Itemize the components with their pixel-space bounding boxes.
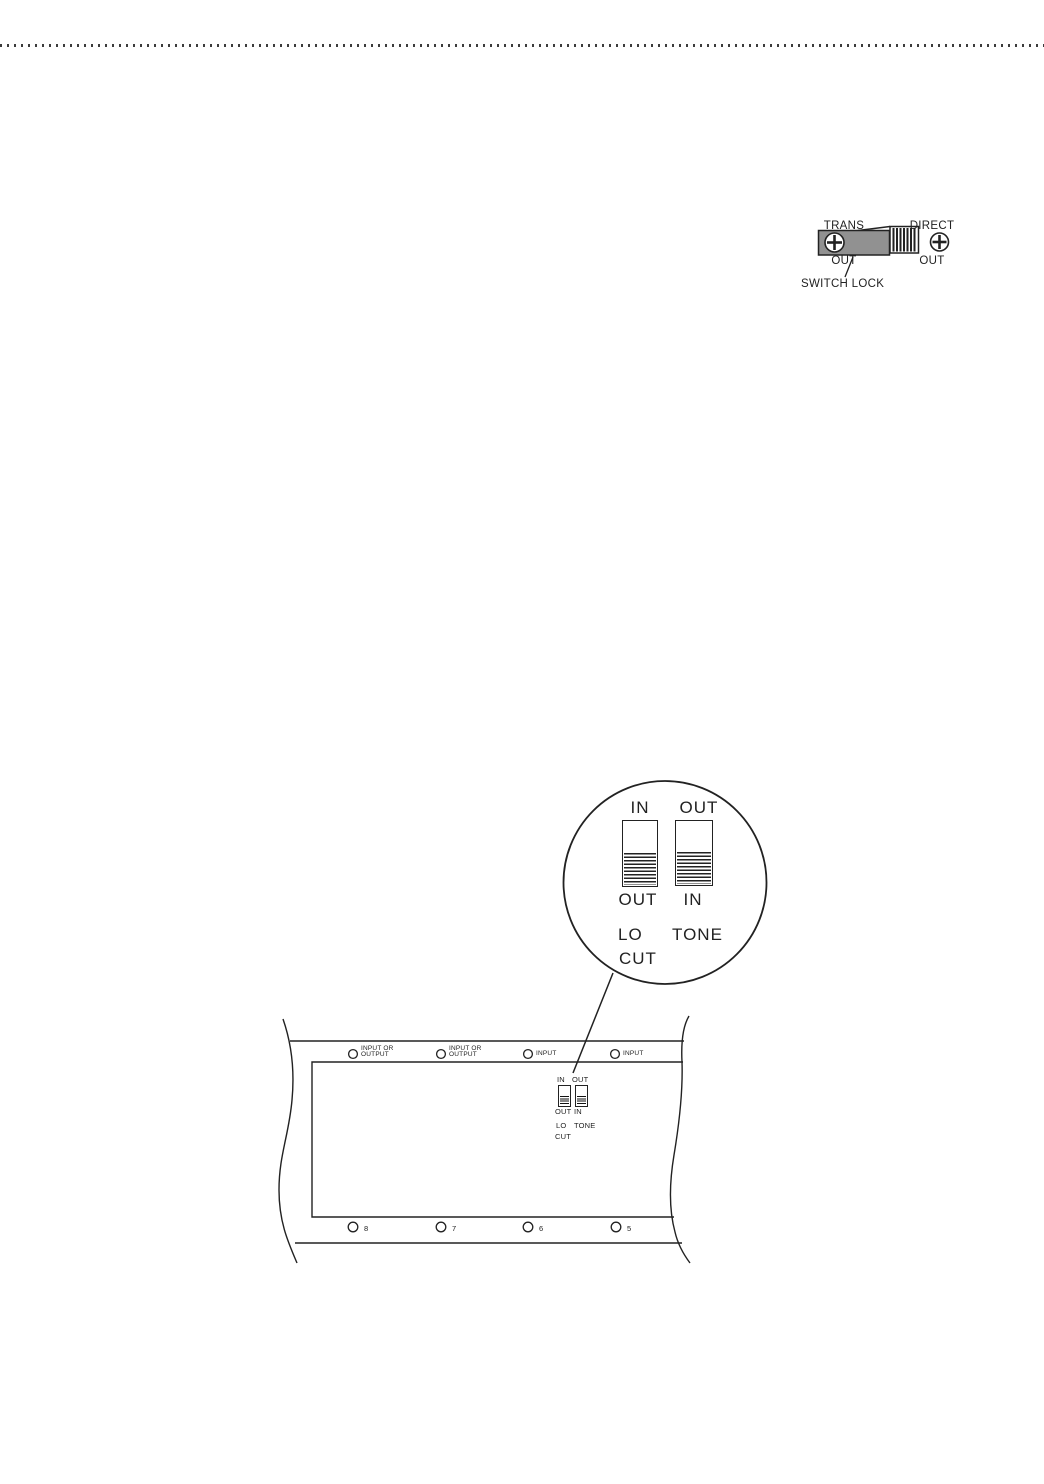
panel-inner-outline [312, 1062, 683, 1217]
jack-label: INPUT OR OUTPUT [361, 1046, 394, 1058]
switch-ridges [577, 1096, 586, 1105]
jack-label: INPUT [623, 1051, 644, 1057]
trans-out-label-line: OUT [812, 256, 876, 268]
switch-ridges [624, 853, 656, 885]
switch-ridges [677, 852, 711, 884]
panel-left-switch-bottom-label: OUT [555, 1108, 571, 1116]
magnifier-left-switch-top-label: IN [620, 799, 660, 816]
tone-switch [575, 1085, 588, 1107]
jack-label: INPUT OR OUTPUT [449, 1046, 482, 1058]
lo-cut-switch [558, 1085, 571, 1107]
jack-circle [349, 1050, 358, 1059]
switch-lock-caption: SWITCH LOCK [801, 279, 884, 291]
jack-label-line: OUTPUT [361, 1052, 394, 1058]
panel-torn-edge-left [279, 1019, 297, 1263]
trans-out-label: TRANS OUT [812, 198, 876, 290]
magnifier-right-switch-top-label: OUT [674, 799, 724, 816]
panel-torn-edge-right [670, 1016, 690, 1263]
trans-out-label-line: TRANS [812, 221, 876, 233]
manual-page: TRANS OUT DIRECT OUT SWITCH LOCK IN OUT … [0, 0, 1044, 1484]
jack-label-line: INPUT [536, 1051, 557, 1057]
diagram-artwork [0, 0, 1044, 1484]
jack-number: 8 [364, 1225, 368, 1233]
magnifier-circle [564, 781, 767, 984]
bottom-jack-circles [348, 1222, 621, 1232]
tone-switch-magnified [675, 820, 713, 886]
lo-cut-switch-magnified [622, 820, 658, 887]
panel-tone-label: TONE [574, 1122, 596, 1130]
panel-right-switch-top-label: OUT [572, 1076, 588, 1084]
jack-label: INPUT [536, 1051, 557, 1057]
direct-out-label-line: DIRECT [900, 221, 964, 233]
direct-out-label-line: OUT [900, 256, 964, 268]
panel-left-switch-top-label: IN [557, 1076, 565, 1084]
tone-label: TONE [672, 926, 723, 943]
jack-circle [437, 1050, 446, 1059]
jack-circle [436, 1222, 446, 1232]
jack-label-line: OUTPUT [449, 1052, 482, 1058]
jack-label-line: INPUT [623, 1051, 644, 1057]
jack-circle [348, 1222, 358, 1232]
jack-number: 7 [452, 1225, 456, 1233]
jack-circle [611, 1050, 620, 1059]
cut-label: CUT [619, 950, 657, 967]
magnifier-pointer-line [573, 973, 613, 1073]
switch-ridges [560, 1096, 569, 1105]
lo-label: LO [618, 926, 643, 943]
magnifier-right-switch-bottom-label: IN [673, 891, 713, 908]
panel-lo-label: LO [556, 1122, 566, 1130]
jack-number: 6 [539, 1225, 543, 1233]
jack-circle [523, 1222, 533, 1232]
jack-circle [524, 1050, 533, 1059]
magnifier-left-switch-bottom-label: OUT [614, 891, 662, 908]
jack-circle [611, 1222, 621, 1232]
panel-right-switch-bottom-label: IN [574, 1108, 582, 1116]
jack-number: 5 [627, 1225, 631, 1233]
panel-cut-label: CUT [555, 1133, 571, 1141]
direct-out-label: DIRECT OUT [900, 198, 964, 290]
